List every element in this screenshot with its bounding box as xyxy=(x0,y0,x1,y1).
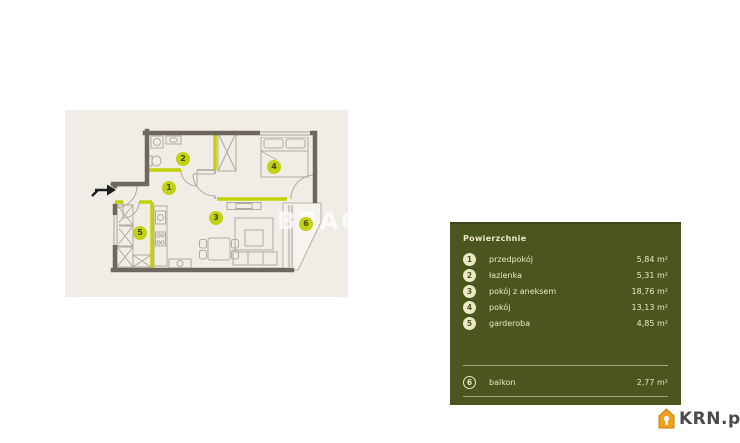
floorplan-canvas: BRACIA 1 2 3 4 5 6 xyxy=(65,110,348,297)
room-label: balkon xyxy=(489,378,637,387)
room-area: 5,84 m² xyxy=(637,255,668,264)
legend-badge-3: 3 xyxy=(463,285,476,298)
room-area: 2,77 m² xyxy=(637,378,668,387)
legend-row-3: 3 pokój z aneksem 18,76 m² xyxy=(463,283,668,299)
legend-badge-2: 2 xyxy=(463,269,476,282)
krn-logo[interactable]: KRN.pl xyxy=(656,407,740,431)
floorplan-drawing xyxy=(65,110,348,297)
room-label: przedpokój xyxy=(489,255,637,264)
room-label: garderoba xyxy=(489,319,637,328)
legend-panel: Powierzchnie 1 przedpokój 5,84 m² 2 łazi… xyxy=(450,222,681,405)
legend-row-balcony: 6 balkon 2,77 m² xyxy=(463,374,668,390)
room-label: pokój xyxy=(489,303,632,312)
legend-badge-5: 5 xyxy=(463,317,476,330)
room-badge-4: 4 xyxy=(267,160,281,174)
room-label: łazienka xyxy=(489,271,637,280)
room-label: pokój z aneksem xyxy=(489,287,632,296)
legend-row-1: 1 przedpokój 5,84 m² xyxy=(463,251,668,267)
room-badge-6: 6 xyxy=(299,217,313,231)
room-area: 5,31 m² xyxy=(637,271,668,280)
legend-row-4: 4 pokój 13,13 m² xyxy=(463,299,668,315)
room-badge-3: 3 xyxy=(209,211,223,225)
legend-title: Powierzchnie xyxy=(463,234,668,243)
house-icon xyxy=(656,407,677,431)
room-area: 13,13 m² xyxy=(632,303,668,312)
room-area: 4,85 m² xyxy=(637,319,668,328)
logo-text: KRN.pl xyxy=(679,409,740,429)
legend-badge-4: 4 xyxy=(463,301,476,314)
legend-divider xyxy=(463,396,668,397)
room-badge-5: 5 xyxy=(133,226,147,240)
legend-row-2: 2 łazienka 5,31 m² xyxy=(463,267,668,283)
room-badge-1: 1 xyxy=(162,181,176,195)
legend-divider xyxy=(463,365,668,366)
legend-badge-6: 6 xyxy=(463,376,476,389)
legend-badge-1: 1 xyxy=(463,253,476,266)
room-badge-2: 2 xyxy=(176,152,190,166)
legend-row-5: 5 garderoba 4,85 m² xyxy=(463,315,668,331)
room-area: 18,76 m² xyxy=(632,287,668,296)
